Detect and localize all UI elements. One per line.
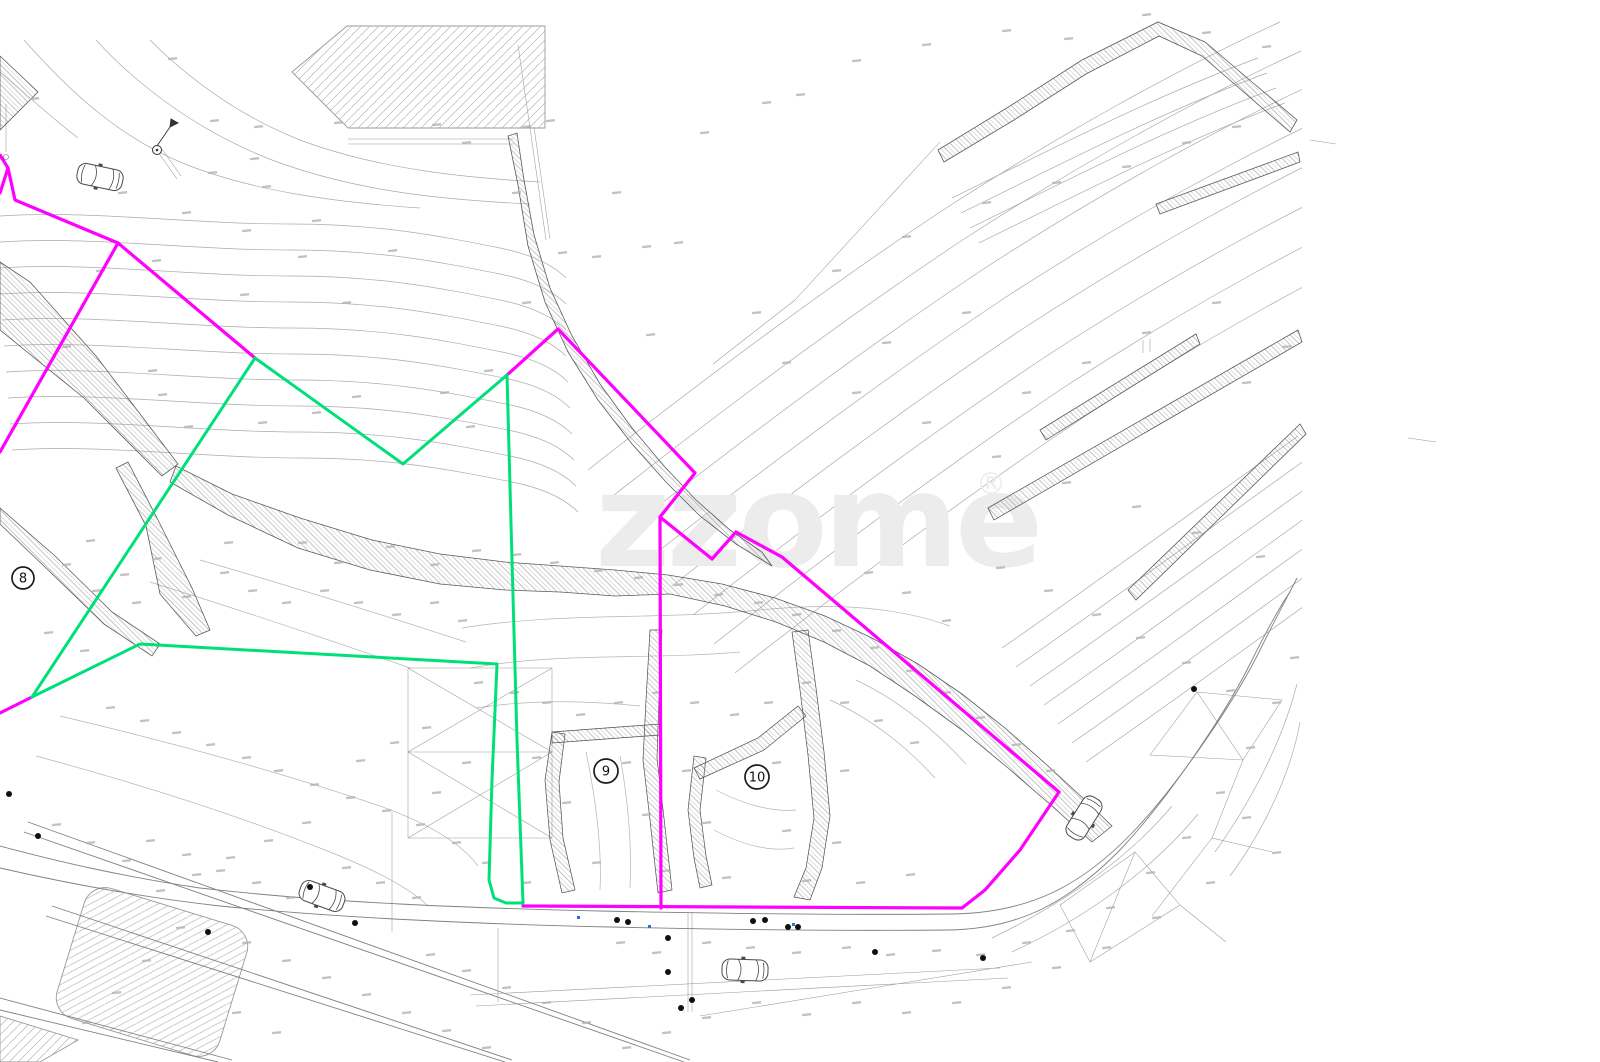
spot-label-mark: [422, 726, 431, 729]
spot-label-mark: [902, 1011, 911, 1014]
spot-label-mark: [942, 619, 951, 622]
spot-label-mark: [1182, 836, 1191, 839]
spot-label-mark: [240, 293, 249, 296]
spot-label-mark: [474, 681, 483, 684]
spot-label-mark: [1022, 941, 1031, 944]
registered-mark-icon: ®: [976, 467, 1006, 502]
spot-label-mark: [416, 823, 425, 826]
spot-label-mark: [86, 841, 95, 844]
spot-label-mark: [152, 259, 161, 262]
spot-label-mark: [376, 881, 385, 884]
spot-label-mark: [216, 869, 225, 872]
spot-label-mark: [334, 121, 343, 124]
survey-flag-symbol: [153, 119, 179, 155]
spot-label-mark: [352, 395, 361, 398]
spot-label-mark: [922, 421, 931, 424]
spot-label-mark: [1242, 381, 1251, 384]
spot-label-mark: [832, 841, 841, 844]
spot-label-mark: [1246, 746, 1255, 749]
spot-label-mark: [1142, 331, 1151, 334]
point-dot: [35, 833, 41, 839]
spot-label-mark: [1290, 656, 1299, 659]
site-plan-drawing: zzome ®: [0, 0, 1600, 1062]
spot-label-mark: [452, 841, 461, 844]
spot-label-mark: [472, 549, 481, 552]
spot-label-mark: [80, 649, 89, 652]
spot-label-mark: [952, 1001, 961, 1004]
spot-label-mark: [120, 573, 129, 576]
spot-label-mark: [426, 953, 435, 956]
spot-label-mark: [1136, 636, 1145, 639]
band-top-left-corner: [0, 56, 38, 130]
spot-label-mark: [462, 761, 471, 764]
spot-label-mark: [1052, 966, 1061, 969]
spot-label-mark: [1232, 125, 1241, 128]
spot-label-mark: [922, 43, 931, 46]
spot-label-mark: [346, 796, 355, 799]
spot-label-mark: [702, 1016, 711, 1019]
plot-marker-label: 10: [749, 771, 766, 786]
spot-label-mark: [1182, 661, 1191, 664]
point-dot: [665, 969, 671, 975]
spot-label-mark: [312, 219, 321, 222]
spot-label-mark: [1216, 791, 1225, 794]
spot-label-mark: [172, 731, 181, 734]
spot-label-mark: [282, 959, 291, 962]
spot-label-mark: [312, 411, 321, 414]
survey-flag-icon: [153, 119, 179, 155]
spot-label-mark: [182, 853, 191, 856]
spot-label-mark: [148, 369, 157, 372]
spot-label-mark: [1226, 689, 1235, 692]
spot-label-mark: [852, 59, 861, 62]
spot-label-mark: [322, 976, 331, 979]
spot-label-mark: [674, 241, 683, 244]
spot-label-mark: [886, 953, 895, 956]
spot-label-mark: [118, 191, 127, 194]
spot-label-mark: [690, 701, 699, 704]
cad-site-plan-canvas: zzome ®: [0, 0, 1600, 1062]
spot-label-mark: [52, 823, 61, 826]
spot-label-mark: [1182, 141, 1191, 144]
spot-label-mark: [840, 769, 849, 772]
spot-label-mark: [1044, 589, 1053, 592]
plot-marker-label: 9: [602, 765, 610, 780]
spot-label-mark: [614, 701, 623, 704]
spot-label-mark: [752, 311, 761, 314]
spot-label-mark: [1122, 165, 1131, 168]
spot-label-mark: [430, 601, 439, 604]
spot-label-mark: [782, 829, 791, 832]
spot-label-mark: [226, 856, 235, 859]
spot-label-mark: [616, 941, 625, 944]
spot-label-mark: [852, 391, 861, 394]
spot-label-mark: [532, 756, 541, 759]
parcel-boundary-line: [507, 375, 523, 903]
spot-label-mark: [220, 571, 229, 574]
spot-label-mark: [1272, 851, 1281, 854]
band-top-right-apex: [938, 22, 1297, 162]
car-icon: [722, 956, 769, 984]
spot-label-mark: [852, 1001, 861, 1004]
spot-label-mark: [910, 741, 919, 744]
band-right-1: [988, 330, 1302, 520]
spot-label-mark: [782, 361, 791, 364]
spot-label-mark: [242, 229, 251, 232]
spot-label-mark: [682, 769, 691, 772]
contours-right-fan: [1002, 436, 1382, 762]
point-dot: [872, 949, 878, 955]
spot-label-mark: [796, 93, 805, 96]
point-dot: [795, 924, 801, 930]
spot-label-mark: [1102, 946, 1111, 949]
spot-label-mark: [856, 881, 865, 884]
spot-label-mark: [106, 706, 115, 709]
spot-label-mark: [642, 245, 651, 248]
spot-label-mark: [542, 1001, 551, 1004]
spot-label-mark: [1152, 916, 1161, 919]
spot-label-mark: [354, 601, 363, 604]
spot-label-mark: [646, 333, 655, 336]
spot-label-mark: [132, 601, 141, 604]
spot-label-mark: [1062, 481, 1071, 484]
spot-label-mark: [1022, 391, 1031, 394]
spot-label-mark: [390, 741, 399, 744]
point-dot: [205, 929, 211, 935]
spot-label-mark: [320, 589, 329, 592]
spot-label-mark: [302, 821, 311, 824]
spot-label-mark: [484, 369, 493, 372]
spot-label-mark: [792, 951, 801, 954]
spot-label-mark: [1242, 816, 1251, 819]
spot-label-mark: [962, 311, 971, 314]
spot-label-mark: [44, 631, 53, 634]
spot-label-mark: [832, 269, 841, 272]
spot-label-mark: [802, 1013, 811, 1016]
spot-label-mark: [700, 131, 709, 134]
point-dot: [750, 918, 756, 924]
spot-label-mark: [432, 791, 441, 794]
spot-label-mark: [576, 713, 585, 716]
spot-label-mark: [1064, 37, 1073, 40]
spot-label-mark: [122, 859, 131, 862]
spot-label-mark: [982, 201, 991, 204]
spot-label-mark: [242, 756, 251, 759]
spot-label-mark: [662, 1031, 671, 1034]
spot-label-mark: [264, 839, 273, 842]
spot-label-mark: [1092, 613, 1101, 616]
spot-label-mark: [592, 255, 601, 258]
spot-label-mark: [772, 761, 781, 764]
spot-label-mark: [902, 235, 911, 238]
parcel-boundary-line: [507, 329, 695, 908]
spot-label-mark: [342, 866, 351, 869]
spot-label-mark: [248, 589, 257, 592]
spot-label-mark: [622, 1046, 631, 1049]
point-dot: [6, 791, 12, 797]
spot-label-mark: [546, 119, 555, 122]
spot-label-mark: [182, 211, 191, 214]
spot-label-mark: [906, 873, 915, 876]
spot-label-mark: [702, 821, 711, 824]
car-icon: [296, 876, 348, 917]
spot-label-mark: [402, 1011, 411, 1014]
spot-label-mark: [224, 541, 233, 544]
point-dot: [614, 917, 620, 923]
spot-label-mark: [156, 889, 165, 892]
spot-label-mark: [1262, 45, 1271, 48]
parcel-boundary-line: [0, 697, 32, 713]
point-dot: [1191, 686, 1197, 692]
spot-label-mark: [840, 701, 849, 704]
blue-mark: [577, 916, 580, 919]
spot-label-mark: [382, 809, 391, 812]
point-dot: [689, 997, 695, 1003]
spot-label-mark: [298, 255, 307, 258]
spot-label-mark: [932, 949, 941, 952]
spot-label-mark: [158, 393, 167, 396]
spot-label-mark: [388, 249, 397, 252]
spot-label-mark: [1256, 555, 1265, 558]
band-right-2: [1128, 424, 1306, 600]
spot-label-mark: [274, 769, 283, 772]
spot-label-mark: [392, 613, 401, 616]
spot-label-mark: [210, 119, 219, 122]
spot-label-mark: [232, 1011, 241, 1014]
spot-label-mark: [542, 701, 551, 704]
point-dot: [352, 920, 358, 926]
spot-label-mark: [592, 861, 601, 864]
point-dot: [785, 924, 791, 930]
spot-label-mark: [272, 1031, 281, 1034]
spot-label-mark: [752, 1001, 761, 1004]
spot-label-mark: [252, 881, 261, 884]
car-icon: [75, 159, 125, 194]
spot-label-mark: [140, 719, 149, 722]
spot-label-mark: [458, 619, 467, 622]
spot-label-mark: [258, 421, 267, 424]
point-dot: [980, 955, 986, 961]
spot-label-mark: [146, 839, 155, 842]
spot-label-mark: [874, 719, 883, 722]
spot-label-mark: [1002, 29, 1011, 32]
spot-label-mark: [730, 713, 739, 716]
spot-label-mark: [762, 101, 771, 104]
plot-marker-10: 10: [745, 765, 769, 789]
point-dot: [665, 935, 671, 941]
spot-label-mark: [1202, 31, 1211, 34]
spot-label-mark: [746, 946, 755, 949]
plot-marker-9: 9: [594, 759, 618, 783]
spot-label-mark: [442, 1029, 451, 1032]
point-dot: [625, 919, 631, 925]
boundary-green: [32, 358, 523, 903]
building-corner: [0, 1016, 78, 1062]
spot-label-mark: [440, 391, 449, 394]
spot-label-mark: [482, 1046, 491, 1049]
spot-label-mark: [282, 601, 291, 604]
plot-marker-label: 8: [19, 572, 27, 587]
spot-label-mark: [254, 125, 263, 128]
spot-label-mark: [250, 157, 259, 160]
point-dot: [762, 917, 768, 923]
spot-label-mark: [1142, 13, 1151, 16]
spot-label-mark: [1206, 881, 1215, 884]
spot-label-mark: [334, 561, 343, 564]
building-top-pentagon: [292, 26, 545, 128]
spot-label-mark: [502, 986, 511, 989]
spot-label-mark: [466, 425, 475, 428]
spot-label-mark: [1002, 986, 1011, 989]
blue-mark: [792, 923, 795, 926]
spot-label-mark: [1106, 906, 1115, 909]
parcel-boundary-line: [523, 792, 1059, 908]
contours-top-right-fan: [952, 58, 1285, 243]
point-dot: [307, 884, 313, 890]
spot-label-mark: [356, 759, 365, 762]
point-dot: [678, 1005, 684, 1011]
spot-label-mark: [764, 701, 773, 704]
spot-label-mark: [522, 301, 531, 304]
spot-label-mark: [882, 341, 891, 344]
spot-label-mark: [612, 191, 621, 194]
spot-label-mark: [622, 761, 631, 764]
plot-marker-8: 8: [12, 567, 34, 589]
spot-label-mark: [62, 563, 71, 566]
spot-label-mark: [168, 57, 177, 60]
spot-label-mark: [208, 171, 217, 174]
spot-label-mark: [842, 946, 851, 949]
spot-label-mark: [462, 969, 471, 972]
spot-label-mark: [206, 743, 215, 746]
spot-label-mark: [652, 951, 661, 954]
spot-label-mark: [192, 873, 201, 876]
spot-label-mark: [702, 941, 711, 944]
spot-label-mark: [86, 539, 95, 542]
spot-label-mark: [262, 185, 271, 188]
spot-label-mark: [1132, 505, 1141, 508]
plot-edge-strips: [545, 630, 830, 900]
parcel-boundary-line: [0, 168, 8, 193]
spot-label-mark: [558, 251, 567, 254]
band-right-4: [1156, 152, 1300, 214]
spot-label-mark: [550, 561, 559, 564]
blue-mark: [648, 925, 651, 928]
spot-label-mark: [362, 993, 371, 996]
spot-label-mark: [562, 801, 571, 804]
spot-label-mark: [1212, 301, 1221, 304]
spot-label-mark: [1082, 361, 1091, 364]
spot-label-mark: [722, 876, 731, 879]
